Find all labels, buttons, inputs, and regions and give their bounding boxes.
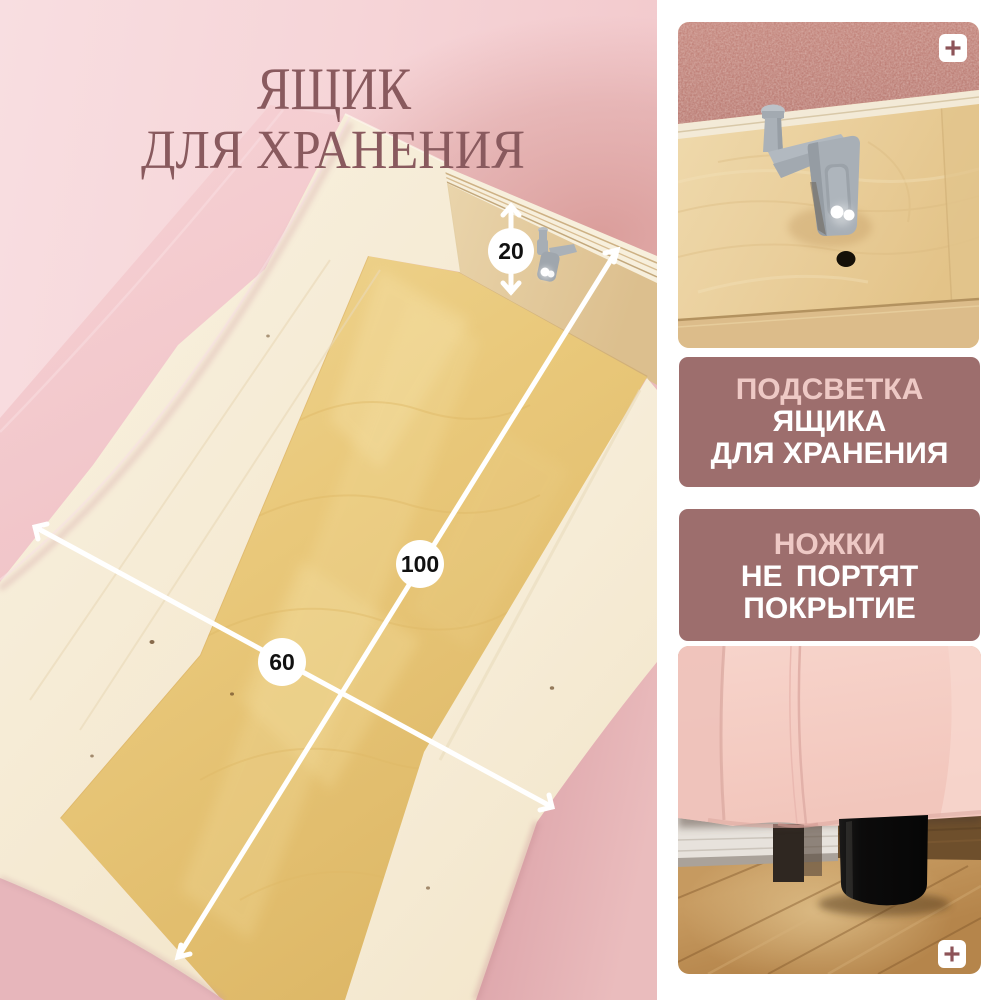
svg-text:20: 20: [498, 238, 524, 264]
svg-text:ЯЩИК: ЯЩИК: [257, 56, 412, 122]
svg-text:100: 100: [401, 551, 439, 577]
svg-text:ДЛЯ ХРАНЕНИЯ: ДЛЯ ХРАНЕНИЯ: [141, 119, 525, 180]
svg-text:60: 60: [269, 649, 295, 675]
